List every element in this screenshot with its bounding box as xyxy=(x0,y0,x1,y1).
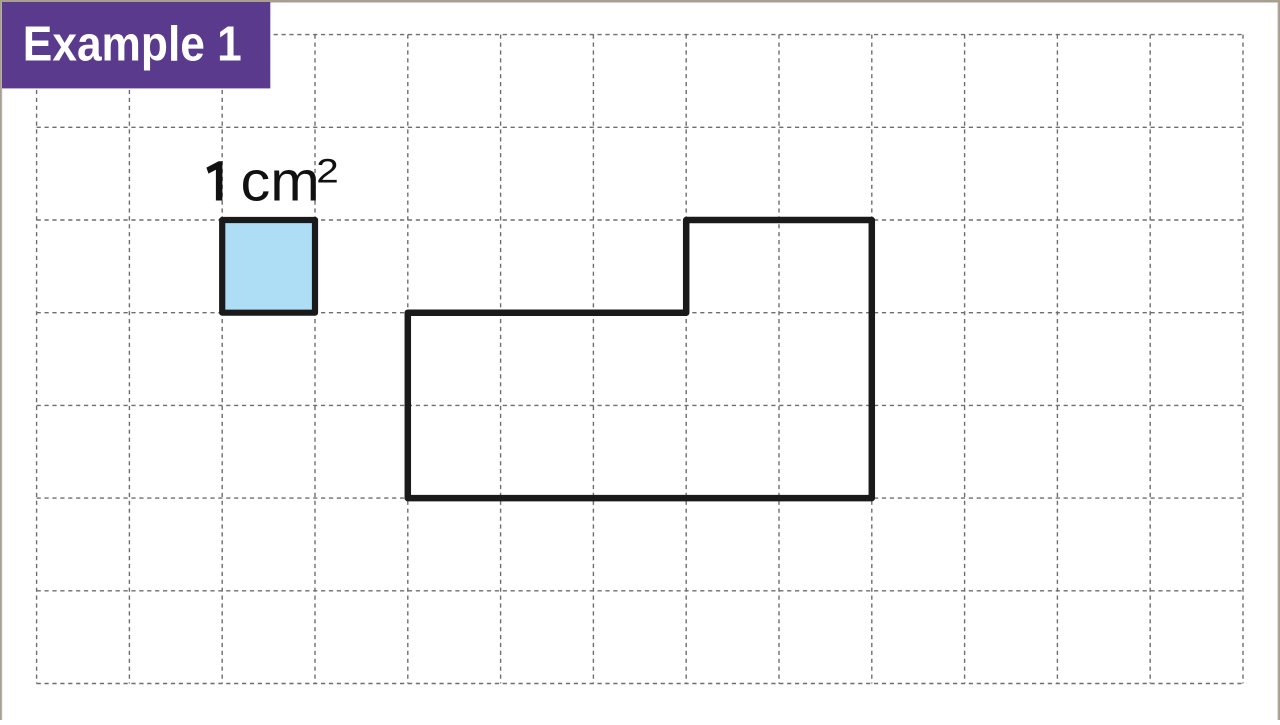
svg-text:2: 2 xyxy=(316,153,339,191)
svg-text:cm: cm xyxy=(241,150,320,214)
svg-text:Example 1: Example 1 xyxy=(23,18,242,72)
